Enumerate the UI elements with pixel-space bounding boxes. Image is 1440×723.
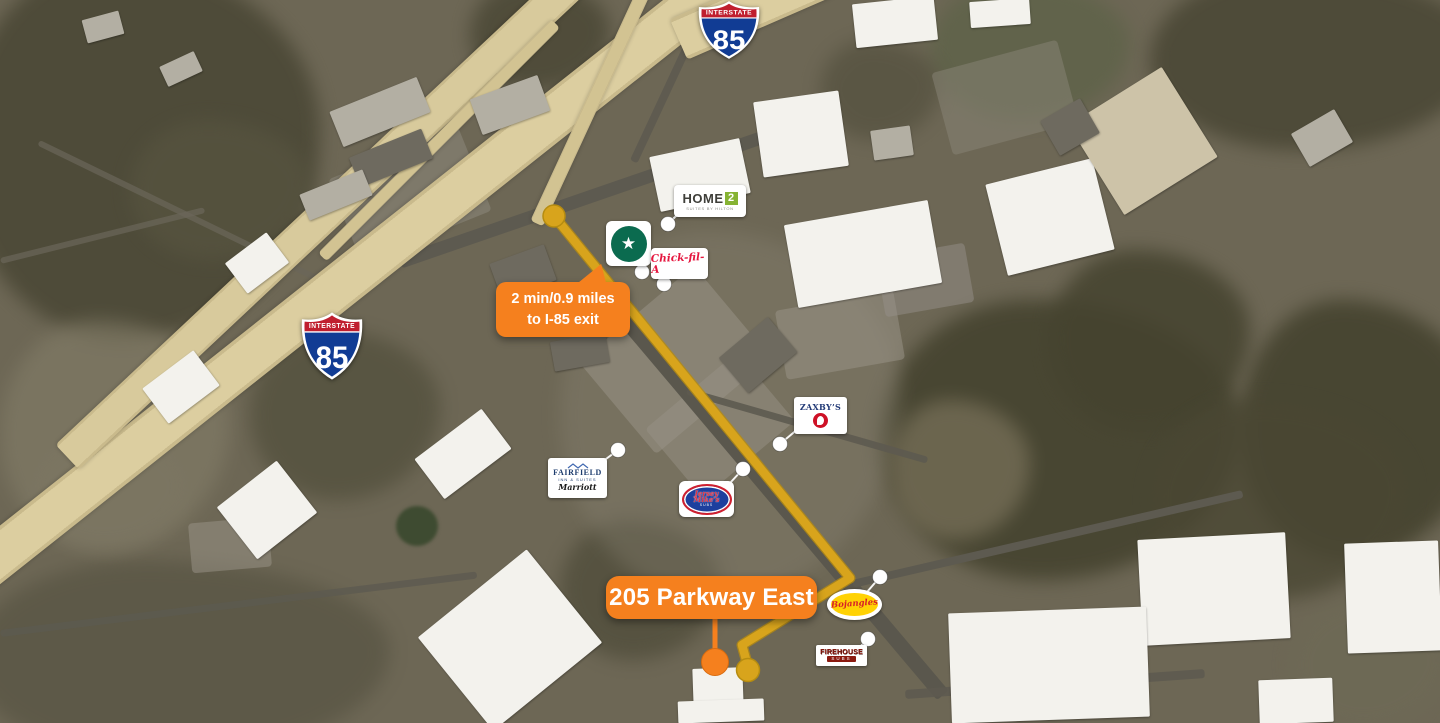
shield-interstate-label: INTERSTATE bbox=[706, 10, 752, 17]
poi-dot-fairfield bbox=[611, 443, 626, 458]
jersey-mikes-logo: Jersey Mike's SUBS bbox=[679, 481, 734, 517]
zaxbys-logo: ZAXBY’S bbox=[794, 397, 847, 434]
home2-digit: 2 bbox=[725, 192, 738, 205]
poi-dot-home2 bbox=[661, 217, 676, 232]
shield-interstate-label: INTERSTATE bbox=[309, 323, 355, 330]
route-end-dot bbox=[737, 659, 760, 682]
zaxbys-chicken-icon bbox=[813, 413, 828, 428]
shield-number: 85 bbox=[316, 340, 349, 375]
home2-suites-logo: HOME 2 SUITES BY HILTON bbox=[674, 185, 746, 217]
shield-number: 85 bbox=[713, 24, 746, 55]
starbucks-logo: ★ bbox=[606, 221, 651, 266]
home2-tagline: SUITES BY HILTON bbox=[686, 206, 733, 211]
drive-time-line2: to I-85 exit bbox=[511, 310, 614, 330]
poi-dot-bojangles bbox=[873, 570, 888, 585]
drive-time-callout: 2 min/0.9 miles to I-85 exit bbox=[496, 282, 630, 337]
map-canvas[interactable]: INTERSTATE 85 INTERSTATE 85 HOME 2 SUITE… bbox=[0, 0, 1440, 723]
fairfield-inn-logo: FAIRFIELD INN & SUITES Marriott bbox=[548, 458, 607, 498]
firehouse-subs-label: SUBS bbox=[827, 656, 855, 662]
property-marker-dot bbox=[702, 649, 729, 676]
home2-wordmark: HOME 2 bbox=[683, 192, 738, 205]
interstate-85-shield-left: INTERSTATE 85 bbox=[300, 311, 364, 381]
property-address-label: 205 Parkway East bbox=[609, 584, 814, 612]
poi-dot-zaxbys bbox=[773, 437, 788, 452]
firehouse-wordmark: FIREHOUSE bbox=[820, 649, 863, 657]
jersey-mikes-subs-label: SUBS bbox=[700, 504, 714, 508]
drive-time-line1: 2 min/0.9 miles bbox=[511, 289, 614, 309]
bojangles-oval: Bojangles bbox=[831, 593, 878, 616]
poi-dot-jerseymikes bbox=[736, 462, 751, 477]
interstate-85-shield-top: INTERSTATE 85 bbox=[697, 0, 761, 60]
drive-time-text: 2 min/0.9 miles to I-85 exit bbox=[511, 289, 614, 330]
home2-word: HOME bbox=[683, 192, 724, 205]
property-address-callout: 205 Parkway East bbox=[606, 576, 817, 619]
starbucks-siren-icon: ★ bbox=[611, 226, 647, 262]
poi-dot-starbucks bbox=[635, 265, 650, 280]
bojangles-script: Bojangles bbox=[831, 599, 878, 611]
jersey-mikes-script: Jersey Mike's bbox=[690, 491, 724, 504]
bojangles-logo: Bojangles bbox=[827, 589, 882, 620]
route-start-dot bbox=[543, 205, 565, 227]
marriott-script: Marriott bbox=[558, 483, 596, 493]
chick-fil-a-script: Chick-fil-A bbox=[651, 252, 708, 275]
firehouse-subs-logo: FIREHOUSE SUBS bbox=[816, 645, 867, 666]
chick-fil-a-logo: Chick-fil-A bbox=[651, 248, 708, 279]
starbucks-star-glyph: ★ bbox=[621, 235, 636, 252]
jersey-mikes-oval: Jersey Mike's SUBS bbox=[682, 484, 732, 515]
zaxbys-wordmark: ZAXBY’S bbox=[800, 403, 841, 411]
